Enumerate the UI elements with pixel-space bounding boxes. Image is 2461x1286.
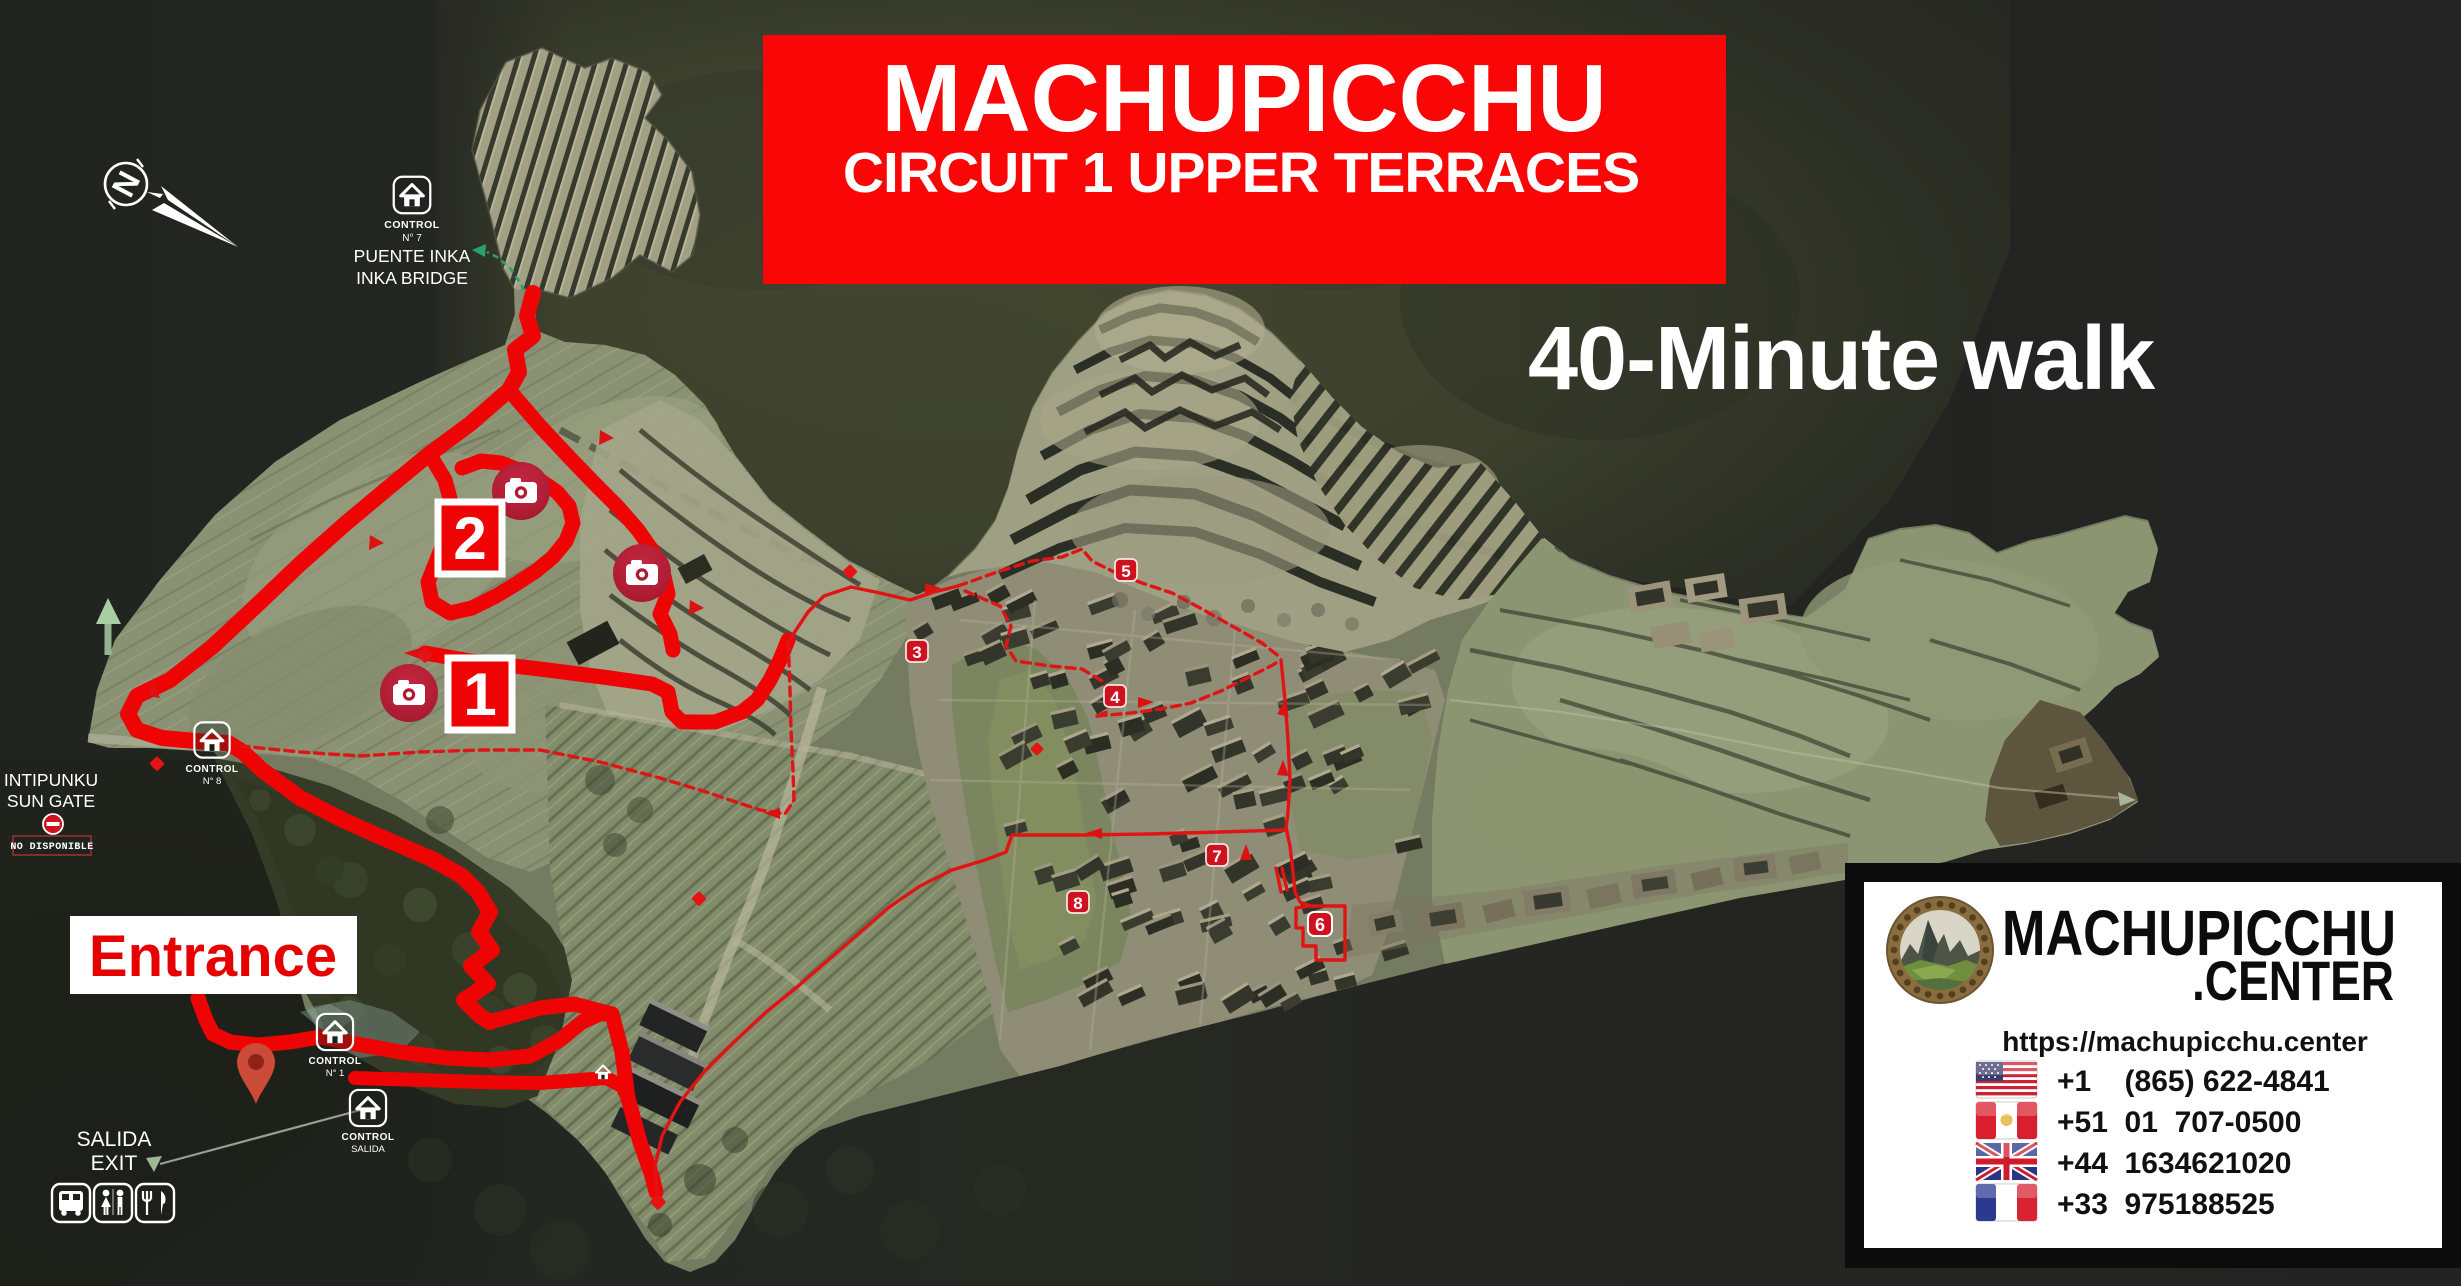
svg-text:https://machupicchu.center: https://machupicchu.center <box>2002 1026 2368 1057</box>
svg-text:CONTROL: CONTROL <box>186 764 239 775</box>
svg-text:CONTROL: CONTROL <box>384 219 439 231</box>
svg-text:CIRCUIT 1 UPPER TERRACES: CIRCUIT 1 UPPER TERRACES <box>843 141 1639 205</box>
svg-text:EXIT: EXIT <box>91 1152 138 1175</box>
svg-text:N° 1: N° 1 <box>326 1068 345 1079</box>
svg-text:N° 8: N° 8 <box>203 776 222 787</box>
svg-text:NO DISPONIBLE: NO DISPONIBLE <box>10 842 93 853</box>
svg-text:SUN GATE: SUN GATE <box>7 791 95 811</box>
svg-text:SALIDA: SALIDA <box>351 1144 385 1155</box>
svg-text:SALIDA: SALIDA <box>77 1128 152 1151</box>
svg-text:MACHUPICCHU: MACHUPICCHU <box>881 45 1606 152</box>
svg-text:INKA BRIDGE: INKA BRIDGE <box>356 268 468 288</box>
svg-text:N° 7: N° 7 <box>402 233 422 244</box>
svg-text:+1 (865) 622-4841: +1 (865) 622-4841 <box>2057 1065 2330 1098</box>
svg-text:INTIPUNKU: INTIPUNKU <box>4 770 98 790</box>
svg-text:+33 975188525: +33 975188525 <box>2057 1188 2275 1221</box>
svg-text:+51 01 707-0500: +51 01 707-0500 <box>2057 1106 2301 1139</box>
svg-text:+44 1634621020: +44 1634621020 <box>2057 1147 2291 1180</box>
svg-text:CONTROL: CONTROL <box>342 1132 395 1143</box>
svg-text:5: 5 <box>1121 562 1130 581</box>
svg-text:4: 4 <box>1110 688 1120 707</box>
svg-text:CONTROL: CONTROL <box>309 1056 362 1067</box>
svg-text:6: 6 <box>1315 915 1325 935</box>
svg-text:1: 1 <box>463 661 496 728</box>
svg-text:.CENTER: .CENTER <box>2192 949 2394 1012</box>
svg-text:2: 2 <box>453 505 486 572</box>
svg-text:Entrance: Entrance <box>89 924 337 989</box>
svg-text:7: 7 <box>1212 847 1221 866</box>
svg-text:3: 3 <box>912 643 921 662</box>
svg-text:8: 8 <box>1073 894 1082 913</box>
svg-text:PUENTE INKA: PUENTE INKA <box>354 246 471 266</box>
svg-text:40-Minute walk: 40-Minute walk <box>1528 309 2156 409</box>
